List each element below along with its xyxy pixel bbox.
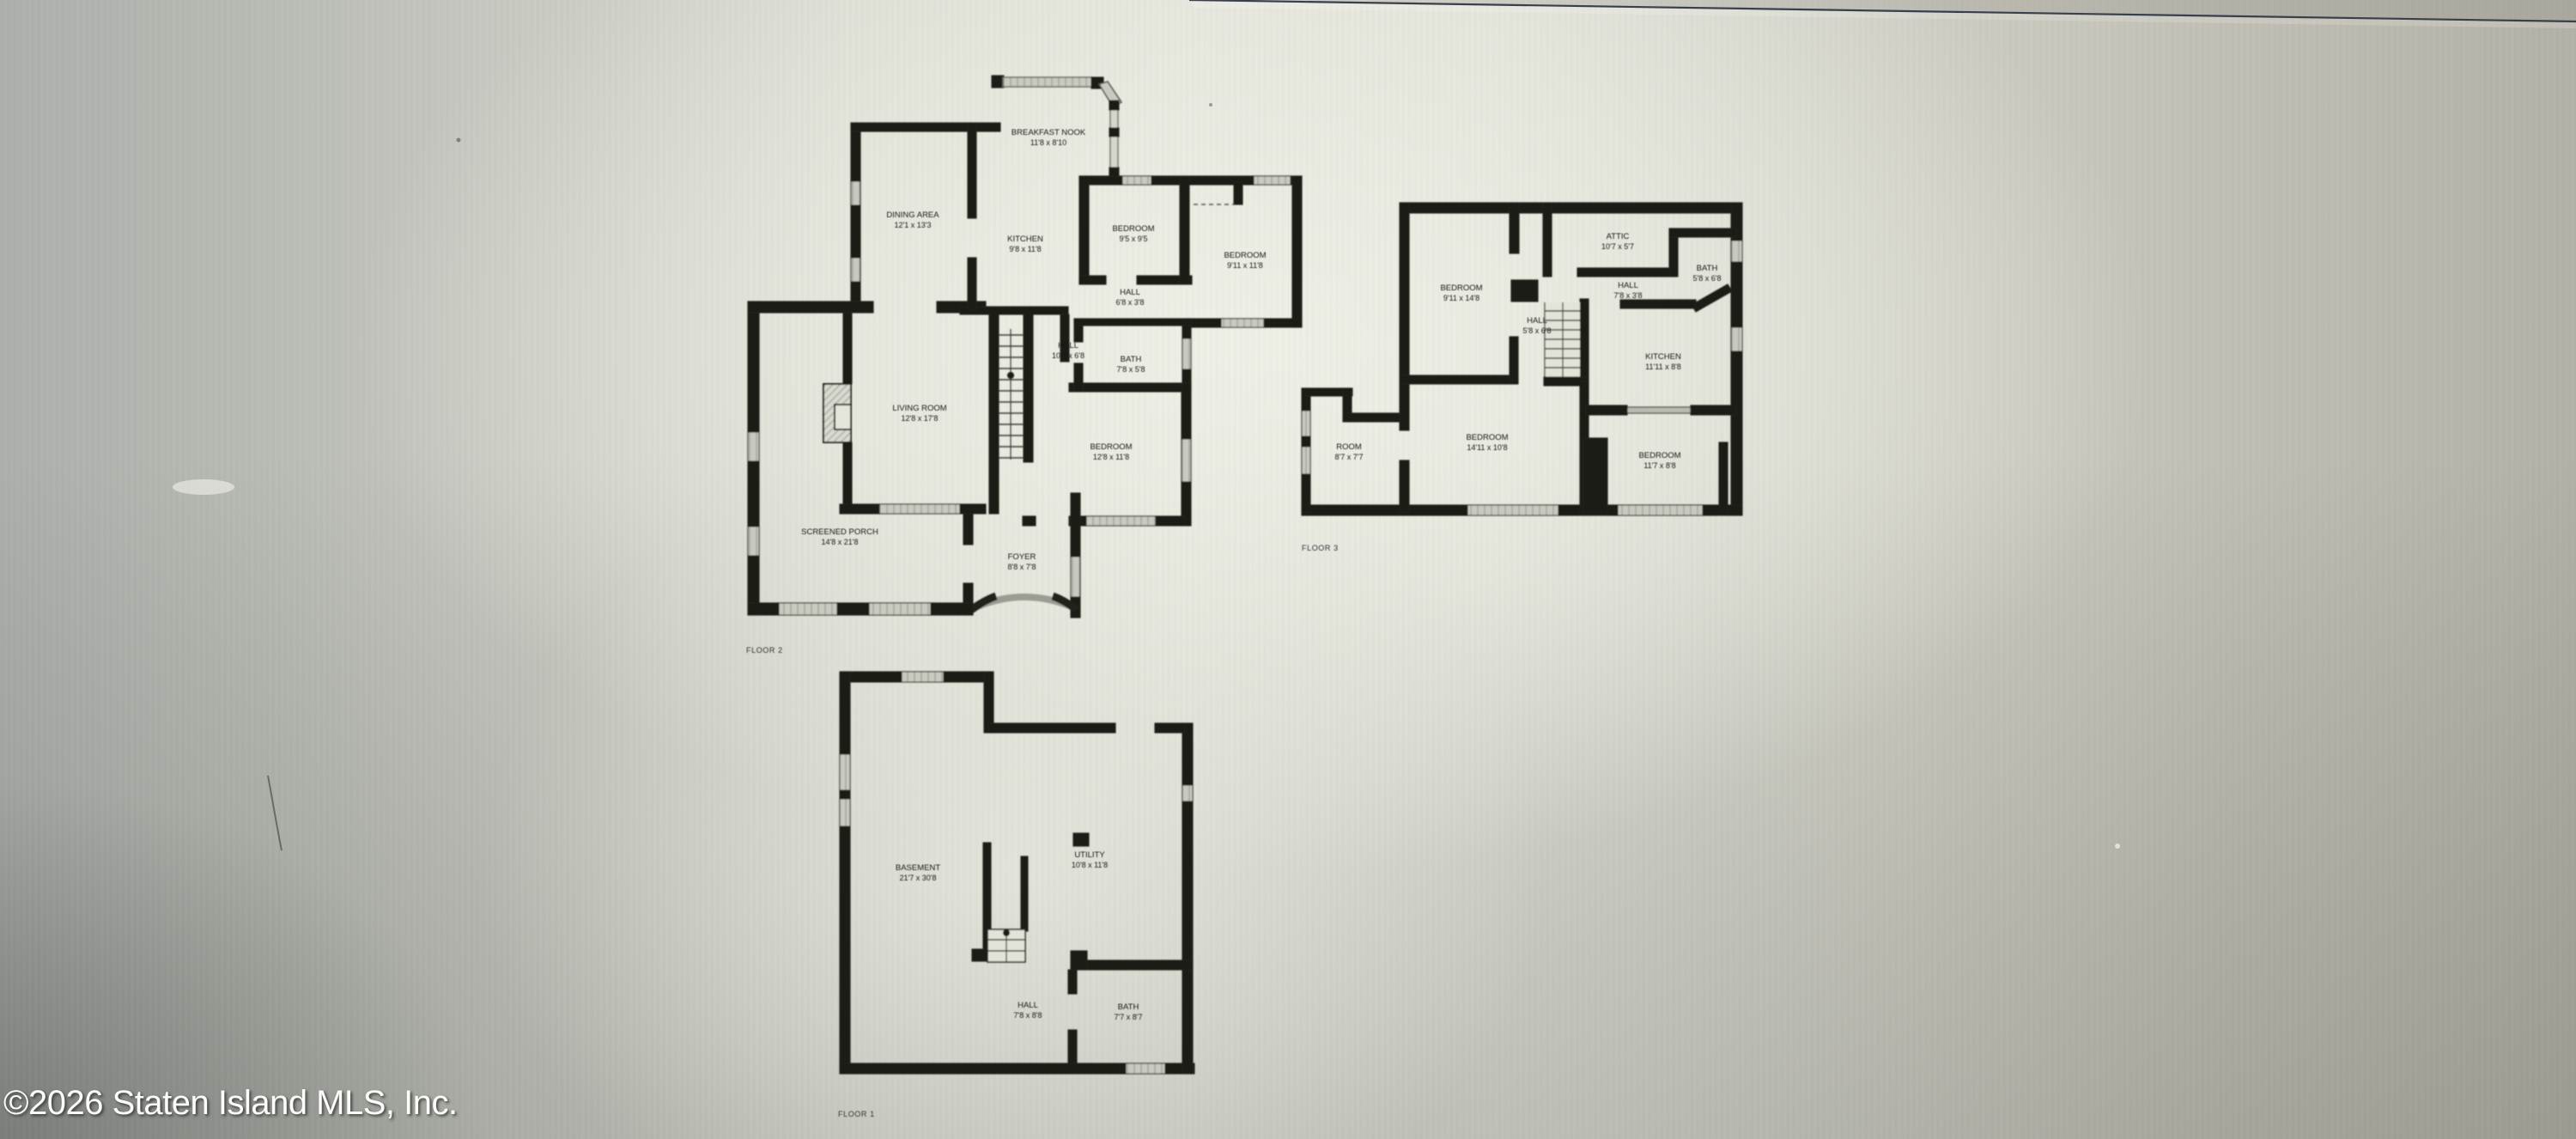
svg-text:8'7 x 7'7: 8'7 x 7'7 [1335,453,1364,461]
svg-text:7'8 x 8'8: 7'8 x 8'8 [1014,1011,1042,1020]
svg-text:9'11 x 14'8: 9'11 x 14'8 [1443,294,1479,302]
svg-text:BEDROOM: BEDROOM [1638,451,1680,460]
svg-text:11'8 x 8'10: 11'8 x 8'10 [1030,138,1066,147]
svg-text:7'7 x 8'7: 7'7 x 8'7 [1115,1013,1143,1021]
svg-text:KITCHEN: KITCHEN [1645,352,1681,362]
svg-text:21'7 x 30'8: 21'7 x 30'8 [900,874,937,882]
svg-text:ROOM: ROOM [1336,442,1362,452]
svg-text:BEDROOM: BEDROOM [1440,283,1482,293]
svg-text:9'5 x 9'5: 9'5 x 9'5 [1120,234,1148,243]
svg-text:DINING AREA: DINING AREA [886,210,939,220]
svg-text:LIVING ROOM: LIVING ROOM [892,404,946,413]
svg-text:14'11 x 10'8: 14'11 x 10'8 [1467,443,1507,452]
svg-text:KITCHEN: KITCHEN [1007,234,1043,244]
svg-text:10'8 x 11'8: 10'8 x 11'8 [1072,861,1108,869]
svg-text:FLOOR 3: FLOOR 3 [1302,544,1339,552]
svg-text:HALL: HALL [1018,1001,1038,1010]
svg-text:11'11 x 8'8: 11'11 x 8'8 [1645,362,1681,371]
svg-text:BATH: BATH [1697,264,1718,273]
svg-text:HALL: HALL [1527,316,1547,326]
svg-text:BREAKFAST NOOK: BREAKFAST NOOK [1012,128,1086,137]
svg-text:11'7 x 8'8: 11'7 x 8'8 [1643,461,1675,470]
svg-text:8'8 x 7'8: 8'8 x 7'8 [1008,563,1036,571]
svg-text:10'7 x 5'7: 10'7 x 5'7 [1601,242,1634,251]
svg-text:6'8 x 3'8: 6'8 x 3'8 [1116,298,1145,307]
svg-text:FLOOR 2: FLOOR 2 [746,646,783,655]
svg-text:SCREENED PORCH: SCREENED PORCH [801,527,878,537]
svg-text:BEDROOM: BEDROOM [1090,442,1132,452]
svg-text:5'8 x 6'8: 5'8 x 6'8 [1693,274,1722,283]
svg-text:BATH: BATH [1118,1002,1139,1012]
svg-text:12'8 x 11'8: 12'8 x 11'8 [1093,453,1129,461]
svg-text:10'8 x 6'8: 10'8 x 6'8 [1052,351,1084,360]
svg-text:UTILITY: UTILITY [1074,850,1105,860]
svg-text:BEDROOM: BEDROOM [1224,251,1266,260]
svg-text:HALL: HALL [1058,341,1078,350]
svg-text:9'8 x 11'8: 9'8 x 11'8 [1009,245,1041,253]
svg-text:12'1 x 13'3: 12'1 x 13'3 [895,221,932,229]
svg-text:ATTIC: ATTIC [1607,232,1630,241]
svg-text:7'8 x 3'8: 7'8 x 3'8 [1614,291,1643,300]
svg-text:12'8 x 17'8: 12'8 x 17'8 [902,414,939,423]
svg-text:HALL: HALL [1120,288,1140,297]
svg-text:BEDROOM: BEDROOM [1112,224,1154,234]
svg-text:HALL: HALL [1618,281,1638,290]
svg-text:14'8 x 21'8: 14'8 x 21'8 [822,538,859,546]
svg-text:BEDROOM: BEDROOM [1466,433,1508,442]
svg-text:FLOOR 1: FLOOR 1 [838,1110,875,1118]
svg-text:9'11 x 11'8: 9'11 x 11'8 [1227,261,1263,270]
svg-text:FOYER: FOYER [1008,552,1036,562]
svg-text:7'8 x 5'8: 7'8 x 5'8 [1117,365,1145,374]
svg-text:BATH: BATH [1121,355,1142,364]
svg-text:5'8 x 6'8: 5'8 x 6'8 [1523,326,1552,335]
svg-text:BASEMENT: BASEMENT [896,863,940,873]
